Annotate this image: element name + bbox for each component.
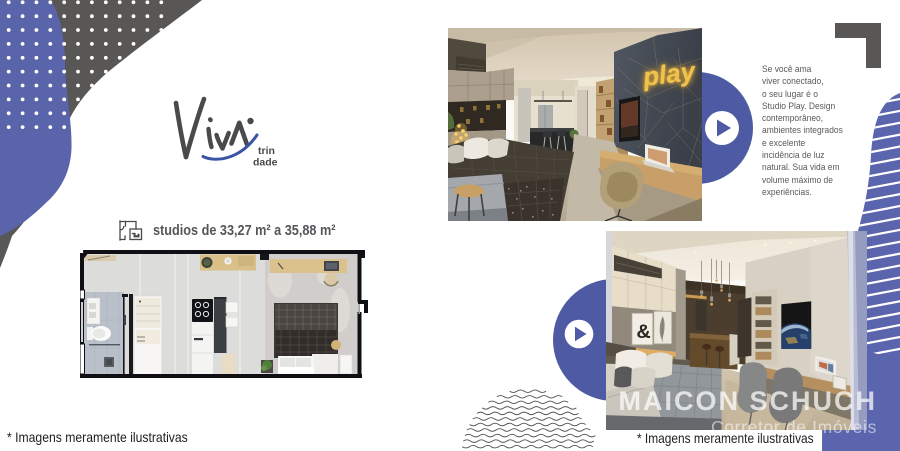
svg-text:dade: dade	[253, 157, 278, 169]
svg-text:trin: trin	[258, 145, 275, 157]
